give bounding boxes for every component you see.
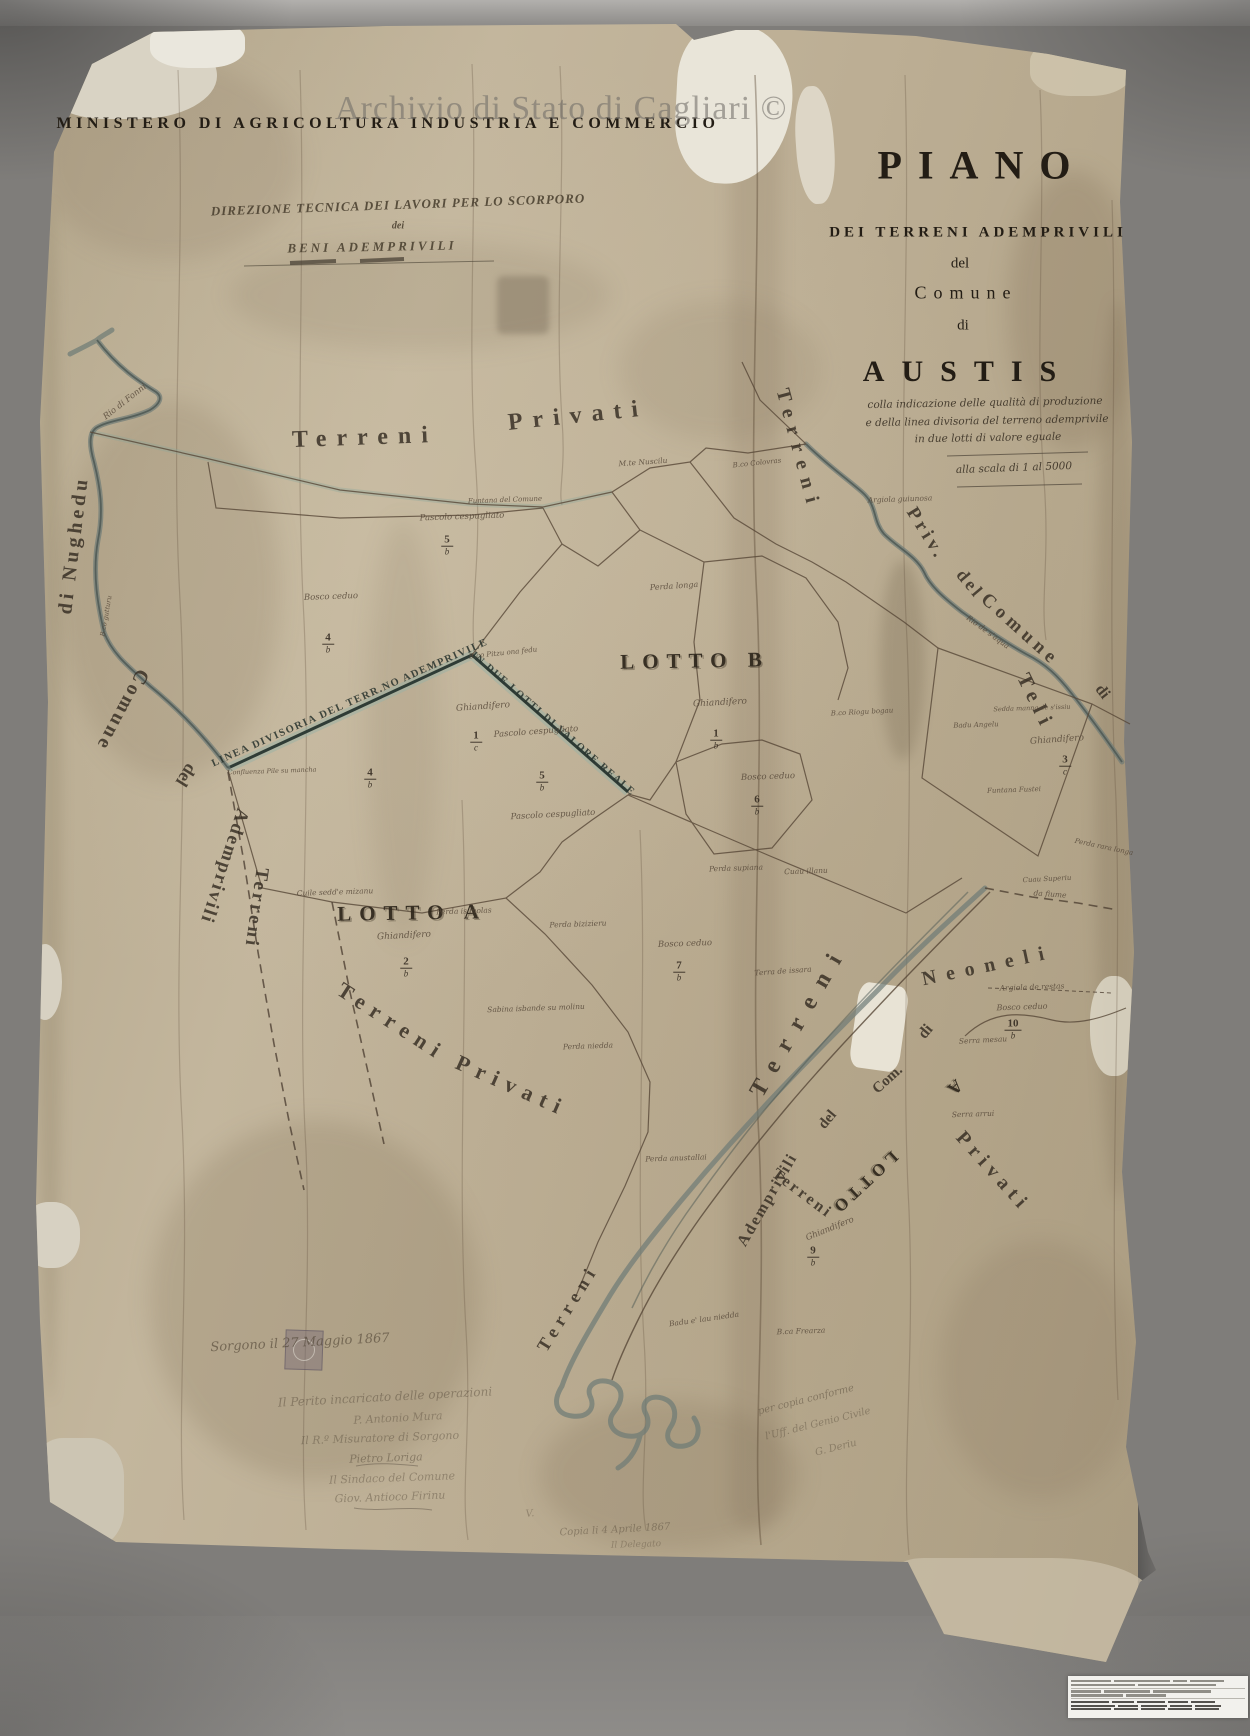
paper-stain: [38, 200, 62, 1400]
place-name-label: Bosco ceduo: [658, 938, 712, 950]
map-title: PIANO: [878, 142, 1087, 189]
place-name-label: Badu Angelu: [953, 720, 999, 730]
torn-patch: [150, 20, 245, 68]
direction-line3: BENI ADEMPRIVILI: [287, 238, 457, 257]
parcel-fraction: 4b: [322, 633, 334, 656]
parcel-fraction: 5b: [536, 771, 548, 794]
title-line4: di: [957, 318, 969, 335]
paper-stain: [40, 60, 300, 260]
comune-name: AUSTIS: [863, 355, 1073, 389]
torn-patch: [1030, 38, 1132, 96]
place-name-label: B.ca Frearza: [777, 1326, 826, 1337]
place-name-label: Serra arrui: [952, 1109, 995, 1119]
parcel-fraction: 9b: [807, 1246, 819, 1269]
paper-stain: [368, 520, 438, 940]
title-sub3: in due lotti di valore eguale: [915, 431, 1062, 446]
paper-stain: [60, 400, 280, 780]
parcel-fraction: 7b: [673, 961, 685, 984]
paper-stain: [940, 1240, 1140, 1500]
torn-patch: [42, 24, 217, 119]
title-line2: del: [951, 256, 969, 273]
parcel-fraction: 4b: [364, 768, 376, 791]
archive-watermark: Archivio di Stato di Cagliari ©: [335, 90, 788, 128]
parcel-fraction: 1b: [710, 729, 722, 752]
place-name-label: Perda supiana: [709, 863, 763, 874]
parcel-fraction: 5b: [441, 535, 453, 558]
territory-label: Terreni: [292, 422, 439, 454]
archival-map-scan: { "watermark": {"text": "Archivio di Sta…: [0, 0, 1250, 1736]
place-name-label: Perda is molas: [436, 906, 492, 917]
signature-line: Pietro Loriga: [349, 1450, 423, 1466]
torn-patch: [1090, 976, 1138, 1076]
place-name-label: Cuau illanu: [784, 866, 828, 877]
torn-patch: [792, 85, 838, 205]
place-name-label: Bosco ceduo: [741, 771, 795, 783]
archive-metadata-strip: [1068, 1676, 1248, 1718]
torn-patch: [28, 944, 62, 1020]
parcel-fraction: 3c: [1059, 755, 1071, 778]
parcel-fraction: 10b: [1005, 1019, 1022, 1042]
parcel-fraction: 6b: [751, 795, 763, 818]
paper-stain: [150, 1120, 480, 1480]
direction-line2: dei: [392, 221, 404, 232]
title-line1: DEI TERRENI ADEMPRIVILI: [829, 225, 1127, 242]
paper-stain: [1095, 300, 1140, 1200]
paper-stain: [230, 240, 610, 350]
paper-stain: [497, 276, 549, 334]
place-name-label: Bosco ceduo: [996, 1002, 1047, 1013]
place-name-label: Perda niedda: [563, 1041, 613, 1052]
torn-patch: [22, 1202, 80, 1268]
signature-line: V.: [525, 1508, 535, 1520]
backdrop-top: [0, 0, 1250, 26]
paper-stain: [880, 560, 925, 760]
signature-line: Il Delegato: [611, 1539, 662, 1551]
torn-patch: [30, 1438, 124, 1548]
title-line3: Comune: [915, 283, 1018, 304]
parcel-fraction: 2b: [400, 957, 412, 980]
map-sheet: [36, 22, 1138, 1664]
repair-patch: [848, 981, 909, 1073]
lot-label: LOTTO B: [620, 647, 770, 675]
place-name-label: Bosco ceduo: [304, 591, 358, 603]
parcel-fraction: 1c: [470, 731, 482, 754]
